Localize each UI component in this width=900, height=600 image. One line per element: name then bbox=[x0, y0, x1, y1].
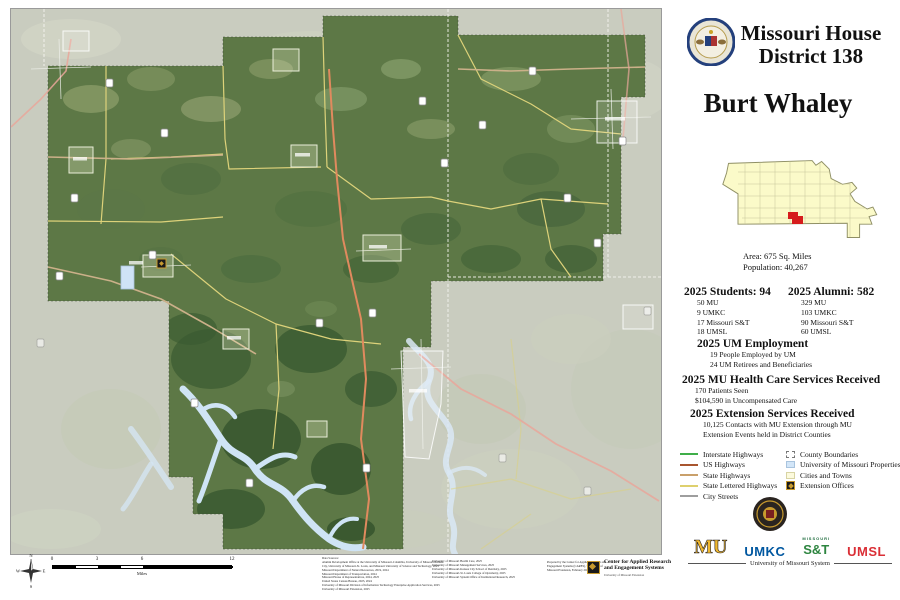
svg-text:S: S bbox=[30, 584, 33, 589]
scale-bar: 0 3 6 12 Miles bbox=[52, 557, 242, 583]
district-satellite-map bbox=[10, 8, 662, 555]
district-area-caption: Area: 675 Sq. Miles Population: 40,267 bbox=[743, 251, 811, 272]
svg-text:E: E bbox=[43, 569, 46, 574]
interstate-swatch bbox=[680, 453, 698, 455]
cares-text: Center for Applied Research and Engageme… bbox=[604, 559, 671, 577]
scale-tick-3: 3 bbox=[96, 557, 99, 562]
um-system-seal bbox=[752, 496, 788, 532]
employment-stats: 2025 UM Employment 19 People Employed by… bbox=[697, 338, 812, 370]
legend-row-lettered-highways: State Lettered Highways bbox=[680, 481, 777, 492]
lettered-highway-swatch bbox=[680, 485, 698, 487]
rule-right bbox=[834, 563, 892, 564]
svg-text:N: N bbox=[29, 553, 33, 558]
cities-towns-swatch bbox=[786, 472, 795, 479]
compass-rose: N S W E bbox=[16, 551, 46, 589]
data-sources-column-1: Data Sources: Alumni Development Office … bbox=[322, 557, 443, 592]
legend-row-us-highways: US Highways bbox=[680, 460, 777, 471]
data-sources-column-2: University of Missouri Health Care, 2025… bbox=[432, 560, 515, 579]
umsl-logo: UMSL bbox=[847, 544, 886, 559]
cares-mark-icon bbox=[587, 561, 600, 574]
legend-area-symbols: County Boundaries University of Missouri… bbox=[786, 449, 900, 491]
page: Missouri House District 138 Burt Whaley … bbox=[0, 0, 900, 600]
alumni-stats: 2025 Alumni: 582 329 MU 103 UMKC 90 Miss… bbox=[788, 286, 874, 337]
um-property-area bbox=[121, 266, 134, 289]
us-highway-swatch bbox=[680, 464, 698, 466]
scale-tick-6: 6 bbox=[141, 557, 144, 562]
population-label: Population: 40,267 bbox=[743, 262, 811, 273]
legend-row-cities-towns: Cities and Towns bbox=[786, 470, 900, 481]
umkc-logo: UMKC bbox=[744, 544, 785, 559]
mu-logo: MU bbox=[694, 536, 727, 559]
scale-tick-12: 12 bbox=[230, 557, 235, 562]
scale-unit-label: Miles bbox=[52, 571, 232, 576]
rule-left bbox=[688, 563, 746, 564]
map-canvas bbox=[11, 9, 661, 554]
area-label: Area: 675 Sq. Miles bbox=[743, 251, 811, 262]
um-system-label: University of Missouri System bbox=[688, 560, 892, 567]
um-properties-swatch bbox=[786, 461, 795, 468]
city-street-swatch bbox=[680, 495, 698, 497]
page-title: Missouri House District 138 bbox=[728, 22, 894, 68]
scale-bar-segments bbox=[52, 565, 232, 569]
state-locator-map bbox=[700, 152, 878, 250]
cares-logo: Center for Applied Research and Engageme… bbox=[587, 559, 671, 577]
state-highway-swatch bbox=[680, 474, 698, 476]
title-line-2: District 138 bbox=[728, 45, 894, 68]
title-line-1: Missouri House bbox=[728, 22, 894, 45]
sandt-logo: MISSOURI S&T bbox=[802, 536, 830, 559]
extension-office-icon bbox=[786, 481, 795, 490]
county-boundary-swatch bbox=[786, 451, 795, 458]
extension-office-marker bbox=[157, 259, 166, 268]
health-stats: 2025 MU Health Care Services Received 17… bbox=[682, 374, 880, 406]
scale-tick-0: 0 bbox=[51, 557, 54, 562]
legend-row-um-properties: University of Missouri Properties bbox=[786, 460, 900, 471]
legend-row-state-highways: State Highways bbox=[680, 470, 777, 481]
legend-row-county-boundaries: County Boundaries bbox=[786, 449, 900, 460]
legend-row-interstate: Interstate Highways bbox=[680, 449, 777, 460]
representative-name: Burt Whaley bbox=[660, 88, 896, 119]
students-stats: 2025 Students: 94 50 MU 9 UMKC 17 Missou… bbox=[684, 286, 771, 337]
legend-line-symbols: Interstate Highways US Highways State Hi… bbox=[680, 449, 777, 502]
legend-row-extension-offices: Extension Offices bbox=[786, 481, 900, 492]
extension-stats: 2025 Extension Services Received 10,125 … bbox=[690, 408, 855, 440]
campus-logos: MU UMKC MISSOURI S&T UMSL bbox=[694, 533, 886, 559]
